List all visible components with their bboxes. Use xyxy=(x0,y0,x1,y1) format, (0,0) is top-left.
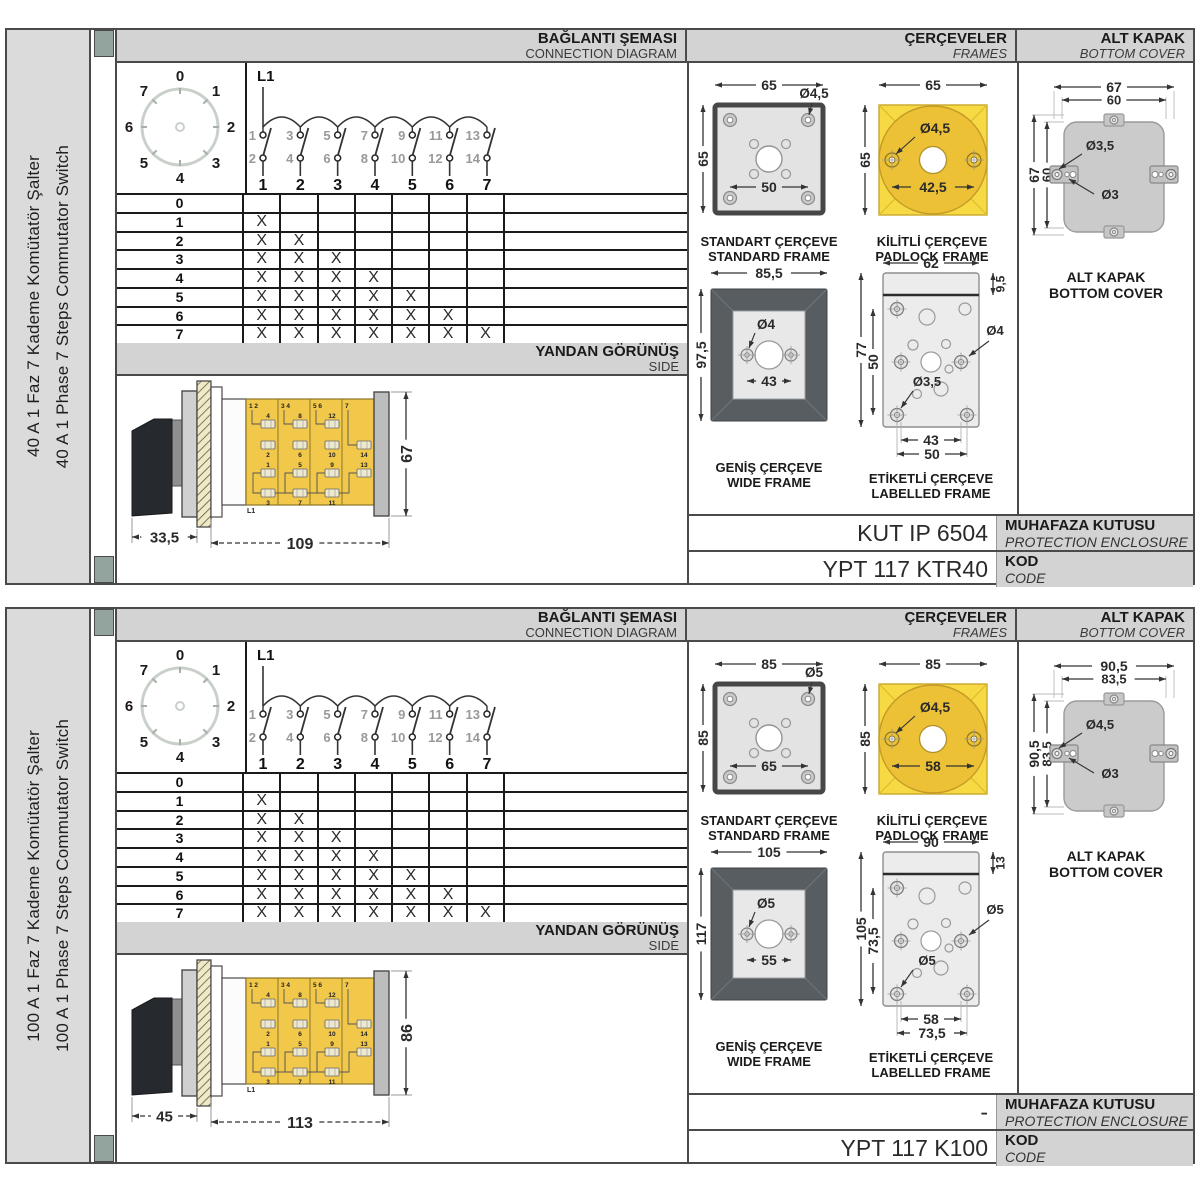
dim-label: 85,5 xyxy=(755,265,782,281)
pole-number: 4 xyxy=(371,177,380,193)
wide-frame-caption-tr: GENİŞ ÇERÇEVE xyxy=(689,1040,849,1055)
code-label-en: CODE xyxy=(1005,571,1193,587)
standard-frame-caption-tr: STANDART ÇERÇEVE xyxy=(689,235,849,250)
terminal-number: 2 xyxy=(266,452,270,459)
info-table: - MUHAFAZA KUTUSU PROTECTION ENCLOSURE Y… xyxy=(687,1093,1193,1162)
step-row-label: 4 xyxy=(117,270,244,287)
step-cell xyxy=(356,830,393,847)
contact-number: 3 xyxy=(286,128,293,143)
step-cell xyxy=(356,251,393,268)
side-length-dim: 109 xyxy=(287,536,314,553)
dial-number: 4 xyxy=(176,170,185,187)
step-cell xyxy=(430,270,467,287)
binder-mark-icon xyxy=(94,30,114,57)
enclosure-label-en: PROTECTION ENCLOSURE xyxy=(1005,1114,1193,1130)
step-cell: X xyxy=(244,849,281,866)
step-table-row: 4XXXX xyxy=(117,849,687,868)
terminal-number: 5 xyxy=(298,1041,302,1048)
step-cell: X xyxy=(281,849,318,866)
step-cell: X xyxy=(319,308,356,325)
step-cell: X xyxy=(393,887,430,904)
position-dial-svg: 01234567 xyxy=(117,63,244,191)
dim-label: 62 xyxy=(923,255,939,271)
step-row-label: 3 xyxy=(117,251,244,268)
step-cell xyxy=(430,793,467,810)
step-table-row: 0 xyxy=(117,774,687,793)
dim-label: 90 xyxy=(923,834,939,850)
wide-frame-caption-tr: GENİŞ ÇERÇEVE xyxy=(689,461,849,476)
step-cell: X xyxy=(281,905,318,922)
dim-label: 65 xyxy=(761,77,777,93)
dim-label: 73,5 xyxy=(918,1025,945,1041)
circuit-input-label: L1 xyxy=(257,647,275,664)
step-cell: X xyxy=(356,905,393,922)
side-height-dim: 67 xyxy=(399,445,416,463)
step-cell: X xyxy=(281,289,318,306)
step-cell-filler xyxy=(505,887,687,904)
contact-number: 9 xyxy=(398,128,405,143)
enclosure-row: KUT IP 6504 MUHAFAZA KUTUSU PROTECTION E… xyxy=(689,516,1193,552)
step-cell xyxy=(393,849,430,866)
step-row-label: 1 xyxy=(117,793,244,810)
step-row-label: 6 xyxy=(117,887,244,904)
step-cell: X xyxy=(244,289,281,306)
dim-label: 73,5 xyxy=(865,927,881,954)
contact-number: 7 xyxy=(361,128,368,143)
contact-number: 5 xyxy=(323,707,330,722)
step-cell xyxy=(468,887,505,904)
terminal-number: 3 xyxy=(266,500,270,507)
header-bottom-cover-tr: ALT KAPAK xyxy=(1017,610,1185,626)
step-cell-filler xyxy=(505,270,687,287)
product-section: 40 A 1 Faz 7 Kademe Komütatör Şalter 40 … xyxy=(5,28,1195,585)
dim-label: 65 xyxy=(857,152,873,168)
step-row-label: 0 xyxy=(117,774,244,791)
step-cell xyxy=(468,868,505,885)
standard-frame-caption-tr: STANDART ÇERÇEVE xyxy=(689,814,849,829)
terminal-number: 7 xyxy=(345,982,349,989)
step-cell: X xyxy=(244,868,281,885)
bottom-cover-panel: 67606760Ø3,5Ø3 ALT KAPAK BOTTOM COVER xyxy=(1017,63,1193,514)
terminal-number: 8 xyxy=(298,992,302,999)
code-row: YPT 117 K100 KOD CODE xyxy=(689,1131,1193,1165)
step-cell xyxy=(468,270,505,287)
step-cell: X xyxy=(281,251,318,268)
step-cell xyxy=(281,793,318,810)
wide-frame-caption: GENİŞ ÇERÇEVE WIDE FRAME xyxy=(689,1040,849,1069)
step-cell: X xyxy=(281,308,318,325)
enclosure-label: MUHAFAZA KUTUSU PROTECTION ENCLOSURE xyxy=(996,1095,1193,1129)
step-cell: X xyxy=(430,887,467,904)
pole-number: 4 xyxy=(371,756,380,772)
contact-number: 3 xyxy=(286,707,293,722)
labelled-frame-svg: 901310573,5Ø5Ø55873,5 xyxy=(853,834,1011,1049)
padlock-frame-svg: 8585Ø4,558 xyxy=(855,654,1009,812)
step-cell xyxy=(430,195,467,212)
step-cell: X xyxy=(468,905,505,922)
step-table: 01X2XX3XXX4XXXX5XXXXX6XXXXXX7XXXXXXX xyxy=(117,772,687,924)
terminal-number: 7 xyxy=(298,1079,302,1086)
code-label: KOD CODE xyxy=(996,1131,1193,1165)
step-cell xyxy=(393,233,430,250)
step-cell-filler xyxy=(505,793,687,810)
header-connection-en: CONNECTION DIAGRAM xyxy=(117,626,677,640)
step-cell: X xyxy=(281,830,318,847)
step-row-label: 5 xyxy=(117,289,244,306)
dial-number: 7 xyxy=(140,83,148,100)
labelled-frame-svg: 629,57750Ø4Ø3,54350 xyxy=(853,255,1011,470)
dial-number: 5 xyxy=(140,155,148,172)
header-connection-tr: BAĞLANTI ŞEMASI xyxy=(117,610,677,626)
enclosure-label-tr: MUHAFAZA KUTUSU xyxy=(1005,1097,1193,1114)
code-value: YPT 117 K100 xyxy=(689,1131,996,1165)
step-cell: X xyxy=(244,326,281,343)
step-cell xyxy=(430,812,467,829)
step-cell xyxy=(281,214,318,231)
step-cell: X xyxy=(319,887,356,904)
step-cell: X xyxy=(356,326,393,343)
dim-label: 65 xyxy=(761,758,777,774)
step-row-label: 2 xyxy=(117,233,244,250)
code-label-tr: KOD xyxy=(1005,554,1193,571)
contact-number: 6 xyxy=(323,151,330,166)
step-cell: X xyxy=(281,233,318,250)
terminal-number: 3 4 xyxy=(281,982,290,989)
step-cell: X xyxy=(281,326,318,343)
dial-number: 3 xyxy=(212,155,220,172)
dim-label: 60 xyxy=(1107,93,1121,108)
pole-number: 6 xyxy=(445,756,454,772)
position-dial-svg: 01234567 xyxy=(117,642,244,770)
dim-label: 50 xyxy=(865,354,881,370)
dial-number: 5 xyxy=(140,734,148,751)
step-table: 01X2XX3XXX4XXXX5XXXXX6XXXXXX7XXXXXXX xyxy=(117,193,687,345)
step-table-row: 1X xyxy=(117,793,687,812)
header-frames: ÇERÇEVELER FRAMES xyxy=(687,30,1017,63)
terminal-number: 1 xyxy=(266,462,270,469)
terminal-number: 1 2 xyxy=(249,982,258,989)
terminal-number: 5 6 xyxy=(313,403,322,410)
circuit-cell: L112134256378491051112613147 xyxy=(247,642,687,772)
step-cell: X xyxy=(281,270,318,287)
step-cell: X xyxy=(319,849,356,866)
terminal-number: 11 xyxy=(329,1079,336,1086)
dim-label: 9,5 xyxy=(994,275,1008,292)
step-cell-filler xyxy=(505,905,687,922)
step-table-row: 3XXX xyxy=(117,830,687,849)
dim-label: 13 xyxy=(994,856,1008,870)
contact-number: 5 xyxy=(323,128,330,143)
terminal-number: 12 xyxy=(328,413,336,420)
header-frames-tr: ÇERÇEVELER xyxy=(687,610,1007,626)
contact-number: 8 xyxy=(361,730,368,745)
step-cell: X xyxy=(430,308,467,325)
header-frames-en: FRAMES xyxy=(687,47,1007,61)
step-table-row: 4XXXX xyxy=(117,270,687,289)
dim-label: 50 xyxy=(761,179,777,195)
enclosure-label: MUHAFAZA KUTUSU PROTECTION ENCLOSURE xyxy=(996,516,1193,550)
contact-number: 14 xyxy=(466,730,481,745)
terminal-number: 5 6 xyxy=(313,982,322,989)
step-cell xyxy=(393,270,430,287)
side-depth-dim: 45 xyxy=(156,1108,173,1125)
pole-number: 1 xyxy=(259,177,268,193)
dial-cell: 01234567 xyxy=(117,642,247,772)
product-section: 100 A 1 Faz 7 Kademe Komütatör Şalter 10… xyxy=(5,607,1195,1164)
step-cell xyxy=(430,251,467,268)
pole-number: 5 xyxy=(408,756,417,772)
step-cell xyxy=(319,233,356,250)
pole-number: 3 xyxy=(333,756,342,772)
step-cell: X xyxy=(356,868,393,885)
header-side-tr: YANDAN GÖRÜNÜŞ xyxy=(117,923,679,939)
step-cell-filler xyxy=(505,830,687,847)
labelled-frame-caption-en: LABELLED FRAME xyxy=(845,1066,1017,1081)
header-bottom-cover-en: BOTTOM COVER xyxy=(1017,626,1185,640)
contact-number: 9 xyxy=(398,707,405,722)
dim-label: 85 xyxy=(761,656,777,672)
section-sidebar: 40 A 1 Faz 7 Kademe Komütatör Şalter 40 … xyxy=(7,30,91,583)
step-cell xyxy=(319,793,356,810)
circuit-input-label: L1 xyxy=(257,68,275,85)
section-title-tr: 40 A 1 Faz 7 Kademe Komütatör Şalter xyxy=(24,155,44,457)
binder-mark-icon xyxy=(94,1135,114,1162)
contact-number: 10 xyxy=(391,151,405,166)
dial-number: 7 xyxy=(140,662,148,679)
pole-number: 7 xyxy=(483,177,492,193)
contact-number: 7 xyxy=(361,707,368,722)
standard-frame-caption-en: STANDARD FRAME xyxy=(689,250,849,265)
contact-number: 4 xyxy=(286,151,294,166)
contact-number: 1 xyxy=(249,707,256,722)
step-cell: X xyxy=(244,905,281,922)
hole-dia-label: Ø4,5 xyxy=(920,120,951,136)
step-cell: X xyxy=(281,812,318,829)
dial-number: 0 xyxy=(176,647,184,664)
labelled-frame-caption-tr: ETİKETLİ ÇERÇEVE xyxy=(845,1051,1017,1066)
step-cell-filler xyxy=(505,774,687,791)
terminal-number: 6 xyxy=(298,1031,302,1038)
bottom-cover-caption-en: BOTTOM COVER xyxy=(1019,864,1193,880)
pole-number: 1 xyxy=(259,756,268,772)
bottom-cover-caption-tr: ALT KAPAK xyxy=(1019,269,1193,285)
step-cell: X xyxy=(393,289,430,306)
contact-number: 8 xyxy=(361,151,368,166)
pole-number: 2 xyxy=(296,756,305,772)
step-cell: X xyxy=(430,326,467,343)
binder-strip xyxy=(93,30,115,583)
step-cell: X xyxy=(319,830,356,847)
section-title-tr: 100 A 1 Faz 7 Kademe Komütatör Şalter xyxy=(24,730,44,1042)
step-cell xyxy=(319,195,356,212)
bottom-cover-svg: 67606760Ø3,5Ø3 xyxy=(1024,77,1190,263)
step-cell: X xyxy=(244,812,281,829)
header-side-tr: YANDAN GÖRÜNÜŞ xyxy=(117,344,679,360)
step-cell xyxy=(468,289,505,306)
frames-panel: 858565Ø5 STANDART ÇERÇEVE STANDARD FRAME… xyxy=(687,642,1017,1093)
step-cell xyxy=(430,289,467,306)
step-cell xyxy=(281,195,318,212)
terminal-number: 14 xyxy=(360,452,368,459)
step-cell: X xyxy=(244,830,281,847)
hole-dia-label: Ø4,5 xyxy=(1086,717,1114,732)
step-cell: X xyxy=(468,326,505,343)
dim-label: 43 xyxy=(761,373,777,389)
dim-label: 85 xyxy=(925,656,941,672)
step-cell xyxy=(356,774,393,791)
pole-number: 5 xyxy=(408,177,417,193)
wide-frame-caption-en: WIDE FRAME xyxy=(689,476,849,491)
circuit-cell: L112134256378491051112613147 xyxy=(247,63,687,193)
step-cell xyxy=(468,793,505,810)
step-cell xyxy=(244,195,281,212)
step-cell-filler xyxy=(505,849,687,866)
section-main: BAĞLANTI ŞEMASI CONNECTION DIAGRAM ÇERÇE… xyxy=(115,30,1193,583)
step-cell xyxy=(468,195,505,212)
dim-label: 65 xyxy=(925,77,941,93)
terminal-number: 10 xyxy=(328,1031,336,1038)
dial-number: 1 xyxy=(212,83,220,100)
terminal-number: 4 xyxy=(266,413,270,420)
step-cell: X xyxy=(393,326,430,343)
step-cell: X xyxy=(393,868,430,885)
hole-dia-label: Ø3 xyxy=(1101,766,1118,781)
step-cell-filler xyxy=(505,308,687,325)
dial-cell: 01234567 xyxy=(117,63,247,193)
code-label: KOD CODE xyxy=(996,552,1193,586)
binder-mark-icon xyxy=(94,609,114,636)
step-cell xyxy=(468,830,505,847)
labelled-frame-caption-tr: ETİKETLİ ÇERÇEVE xyxy=(845,472,1017,487)
step-cell xyxy=(319,812,356,829)
binder-strip xyxy=(93,609,115,1162)
enclosure-label-tr: MUHAFAZA KUTUSU xyxy=(1005,518,1193,535)
step-cell-filler xyxy=(505,195,687,212)
step-cell-filler xyxy=(505,289,687,306)
dim-label: 85 xyxy=(695,730,711,746)
terminal-number: 7 xyxy=(298,500,302,507)
side-length-dim: 113 xyxy=(287,1115,313,1132)
contact-number: 14 xyxy=(466,151,481,166)
bottom-cover-caption-en: BOTTOM COVER xyxy=(1019,285,1193,301)
header-row: BAĞLANTI ŞEMASI CONNECTION DIAGRAM ÇERÇE… xyxy=(117,30,1193,63)
step-cell: X xyxy=(244,793,281,810)
contact-number: 11 xyxy=(429,128,443,143)
step-cell xyxy=(393,830,430,847)
step-cell: X xyxy=(356,849,393,866)
step-row-label: 6 xyxy=(117,308,244,325)
step-table-row: 1X xyxy=(117,214,687,233)
step-cell xyxy=(319,214,356,231)
header-frames: ÇERÇEVELER FRAMES xyxy=(687,609,1017,642)
standard-frame-svg: 656550Ø4,5 xyxy=(693,75,845,233)
step-table-row: 5XXXXX xyxy=(117,868,687,887)
dim-label: 58 xyxy=(925,758,941,774)
dim-label: 42,5 xyxy=(919,179,946,195)
step-cell xyxy=(393,195,430,212)
step-cell xyxy=(430,774,467,791)
header-connection-tr: BAĞLANTI ŞEMASI xyxy=(117,31,677,47)
padlock-frame-caption-tr: KİLİTLİ ÇERÇEVE xyxy=(847,235,1017,250)
bottom-cover-caption-tr: ALT KAPAK xyxy=(1019,848,1193,864)
circuit-diagram-svg: L112134256378491051112613147 xyxy=(247,63,687,193)
step-cell xyxy=(356,233,393,250)
section-title-en: 40 A 1 Phase 7 Steps Commutator Switch xyxy=(53,145,73,468)
step-cell: X xyxy=(244,887,281,904)
step-cell xyxy=(468,214,505,231)
wide-frame-caption: GENİŞ ÇERÇEVE WIDE FRAME xyxy=(689,461,849,490)
step-cell: X xyxy=(319,868,356,885)
step-cell xyxy=(468,308,505,325)
step-cell xyxy=(281,774,318,791)
contact-number: 1 xyxy=(249,128,256,143)
side-depth-dim: 33,5 xyxy=(150,529,179,546)
header-side-en: SIDE xyxy=(117,939,679,953)
step-cell xyxy=(468,774,505,791)
dial-number: 4 xyxy=(176,749,185,766)
side-view-svg: 1 242133 486575 6121091171413L14511386 xyxy=(120,956,680,1160)
step-row-label: 7 xyxy=(117,905,244,922)
hole-dia-label: Ø5 xyxy=(986,902,1003,917)
step-cell xyxy=(319,774,356,791)
terminal-number: 2 xyxy=(266,1031,270,1038)
header-bottom-cover-tr: ALT KAPAK xyxy=(1017,31,1185,47)
wide-frame-caption-en: WIDE FRAME xyxy=(689,1055,849,1070)
dial-number: 6 xyxy=(125,119,133,136)
dim-label: 65 xyxy=(695,151,711,167)
step-cell: X xyxy=(244,308,281,325)
header-side-view: YANDAN GÖRÜNÜŞ SIDE xyxy=(117,343,687,376)
standard-frame-caption-en: STANDARD FRAME xyxy=(689,829,849,844)
step-cell xyxy=(468,251,505,268)
hole-dia-label: Ø5 xyxy=(757,896,776,911)
pole-number: 6 xyxy=(445,177,454,193)
contact-number: 4 xyxy=(286,730,294,745)
dial-number: 1 xyxy=(212,662,220,679)
step-cell-filler xyxy=(505,214,687,231)
step-cell: X xyxy=(430,905,467,922)
header-bottom-cover: ALT KAPAK BOTTOM COVER xyxy=(1017,609,1193,642)
step-cell xyxy=(468,233,505,250)
contact-number: 10 xyxy=(391,730,405,745)
step-table-row: 5XXXXX xyxy=(117,289,687,308)
terminal-number: 4 xyxy=(266,992,270,999)
dim-label: 105 xyxy=(757,844,781,860)
code-label-tr: KOD xyxy=(1005,1133,1193,1150)
step-cell: X xyxy=(319,251,356,268)
step-table-row: 6XXXXXX xyxy=(117,887,687,906)
section-sidebar: 100 A 1 Faz 7 Kademe Komütatör Şalter 10… xyxy=(7,609,91,1162)
contact-number: 12 xyxy=(428,730,442,745)
step-cell xyxy=(393,214,430,231)
step-cell xyxy=(244,774,281,791)
section-title-en: 100 A 1 Phase 7 Steps Commutator Switch xyxy=(53,719,73,1052)
hole-dia-label: Ø3,5 xyxy=(1086,138,1114,153)
step-cell: X xyxy=(244,233,281,250)
step-cell-filler xyxy=(505,326,687,343)
hole-dia-label: Ø4,5 xyxy=(799,86,829,101)
terminal-number: 5 xyxy=(298,462,302,469)
enclosure-value: - xyxy=(689,1095,996,1129)
terminal-number: 10 xyxy=(328,452,336,459)
hole-dia-label: Ø4,5 xyxy=(920,699,951,715)
step-cell-filler xyxy=(505,812,687,829)
section-main: BAĞLANTI ŞEMASI CONNECTION DIAGRAM ÇERÇE… xyxy=(115,609,1193,1162)
step-cell xyxy=(356,214,393,231)
header-connection-en: CONNECTION DIAGRAM xyxy=(117,47,677,61)
bottom-cover-panel: 90,583,590,583,5Ø4,5Ø3 ALT KAPAK BOTTOM … xyxy=(1017,642,1193,1093)
dim-label: 85 xyxy=(857,731,873,747)
